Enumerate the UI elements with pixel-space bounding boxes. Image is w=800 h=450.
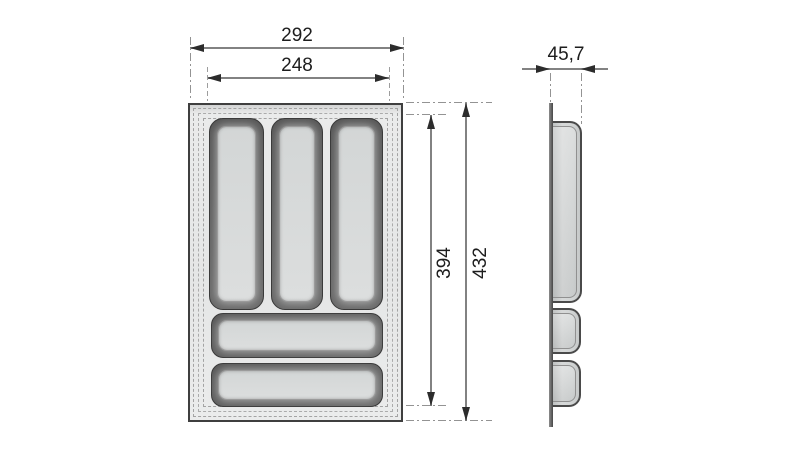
dimension-label-depth: 45,7 [532, 44, 600, 66]
arrowhead-45-7-left [536, 65, 550, 73]
dimension-line-292 [190, 47, 404, 49]
extension-line-bottom-inner [406, 405, 446, 406]
extension-line-bottom-outer [406, 420, 492, 421]
dimension-label-outer-height: 432 [468, 234, 494, 292]
compartment-vertical-2 [271, 118, 323, 310]
side-view-bulge-inner-line [553, 126, 577, 298]
arrowhead-45-7-right [581, 65, 595, 73]
front-view-tray-body [188, 103, 403, 422]
extension-line-top-outer [406, 102, 492, 103]
compartment-vertical-1 [209, 118, 264, 310]
arrowhead-432-top [462, 103, 470, 117]
dimension-line-432 [465, 103, 467, 421]
compartment-vertical-3 [330, 118, 383, 310]
extension-line-292-left [190, 37, 191, 101]
side-view-bulge-2 [553, 308, 581, 354]
compartment-floor [339, 127, 374, 301]
extension-line-top-inner [406, 114, 446, 115]
arrowhead-432-bottom [462, 407, 470, 421]
arrowhead-394-bottom [427, 392, 435, 406]
arrowhead-292-right [390, 44, 404, 52]
arrowhead-292-left [190, 44, 204, 52]
extension-line-292-right [403, 37, 404, 101]
compartment-horizontal-1 [211, 313, 383, 358]
compartment-floor [218, 127, 255, 301]
compartment-floor [219, 321, 375, 350]
technical-drawing-canvas: 292 248 394 432 45,7 [0, 0, 800, 450]
dimension-label-inner-width: 248 [265, 55, 329, 77]
arrowhead-248-left [207, 74, 221, 82]
compartment-floor [280, 127, 314, 301]
side-view-bulge-1 [553, 121, 582, 303]
dimension-line-248 [207, 77, 389, 79]
extension-line-248-left [207, 67, 208, 101]
arrowhead-248-right [375, 74, 389, 82]
dimension-line-45-7 [522, 68, 608, 70]
extension-line-248-right [389, 67, 390, 101]
dimension-label-inner-height: 394 [432, 234, 458, 292]
dimension-label-outer-width: 292 [265, 25, 329, 47]
extension-line-45-7-left [550, 73, 551, 102]
side-view-bulge-3 [553, 360, 581, 407]
side-view-bulge-inner-line [553, 365, 576, 402]
compartment-horizontal-2 [211, 363, 383, 407]
extension-line-45-7-right [581, 73, 582, 124]
arrowhead-394-top [427, 115, 435, 129]
compartment-floor [219, 371, 375, 399]
side-view-bulge-inner-line [553, 313, 576, 349]
